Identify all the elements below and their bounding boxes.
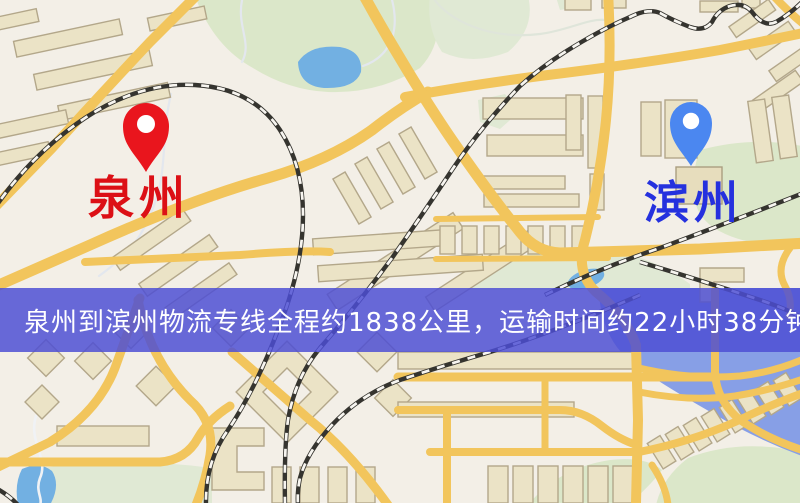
origin-label: 泉州 — [88, 175, 190, 221]
map-canvas — [0, 0, 800, 503]
route-info-text: 泉州到滨州物流专线全程约1838公里，运输时间约22小时38分钟. — [24, 302, 800, 339]
lake-bottom-left — [17, 465, 56, 503]
destination-label: 滨州 — [644, 180, 742, 225]
map-view: 泉州 滨州 泉州到滨州物流专线全程约1838公里，运输时间约22小时38分钟. — [0, 0, 800, 503]
lake-top — [298, 47, 361, 88]
route-info-banner: 泉州到滨州物流专线全程约1838公里，运输时间约22小时38分钟. — [0, 288, 800, 352]
